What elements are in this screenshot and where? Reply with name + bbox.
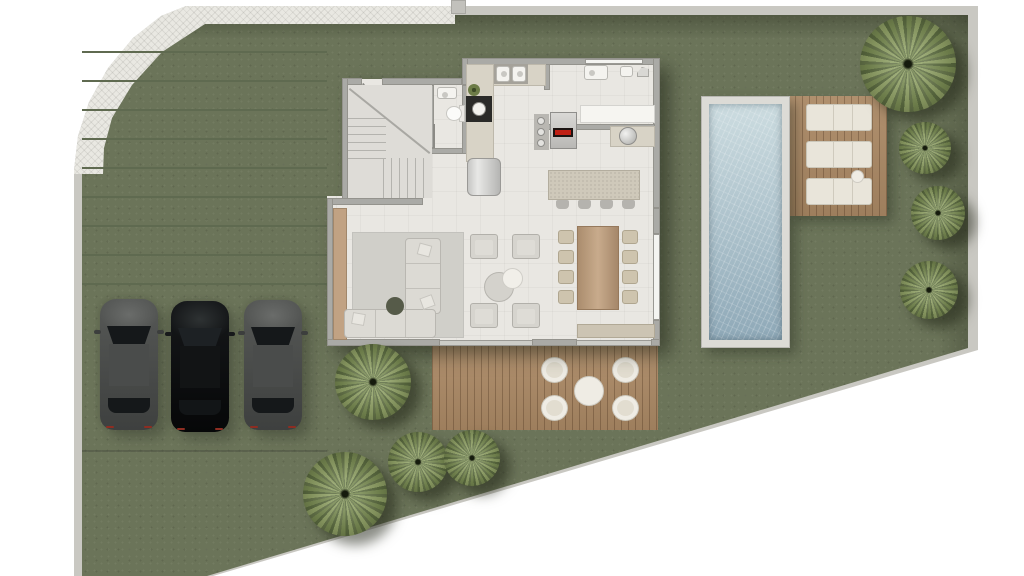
kitchen-island	[548, 170, 640, 200]
armchair-cushion	[475, 309, 493, 324]
sliding-door-track	[440, 340, 532, 346]
wall-bottom-mid	[532, 339, 577, 346]
car-windshield	[107, 326, 151, 344]
dark-side-table	[386, 297, 404, 315]
bar-stool	[622, 200, 635, 209]
dining-chair	[622, 230, 638, 244]
armchair-cushion	[517, 309, 535, 324]
car-taillight	[215, 428, 223, 430]
armchair	[470, 234, 498, 259]
floor-plan-canvas	[0, 0, 1024, 576]
dryer	[512, 66, 526, 82]
dining-table	[577, 226, 619, 310]
laundry-window	[585, 59, 643, 64]
wall-hall-living	[327, 198, 423, 205]
toilet	[446, 106, 462, 121]
car-mirror	[165, 332, 172, 336]
armchair	[470, 303, 498, 328]
wall-entry-right	[382, 78, 462, 85]
bar-stool	[578, 200, 591, 209]
wall-right-mid	[653, 208, 660, 234]
dryer-door	[517, 71, 523, 77]
armchair	[512, 303, 540, 328]
car-mirror	[301, 331, 308, 335]
stair-treads-upper	[348, 118, 386, 164]
dining-chair	[558, 230, 574, 244]
washer-door	[501, 71, 507, 77]
cooktop-knob	[537, 139, 545, 147]
dining-chair	[558, 250, 574, 264]
car-mirror	[238, 331, 245, 335]
palm-tree	[388, 432, 448, 492]
palm-tree	[900, 261, 958, 319]
car-mirror	[157, 330, 164, 334]
palm-tree	[911, 186, 965, 240]
wall-bottom-corner	[651, 339, 660, 346]
throw-pillow	[351, 312, 366, 326]
palm-tree	[444, 430, 500, 486]
car-mirror	[228, 332, 235, 336]
palm-tree	[303, 452, 387, 536]
oven-display-digits	[555, 130, 571, 135]
sink-basin	[442, 92, 448, 98]
armchair-cushion	[517, 240, 535, 255]
bar-stool	[600, 200, 613, 209]
car-taillight	[288, 426, 296, 428]
white-counter	[580, 105, 655, 123]
dining-chair	[558, 290, 574, 304]
car-suv-gray	[100, 299, 158, 430]
car-roof	[109, 344, 149, 386]
car-suv-gray	[244, 300, 302, 430]
car-rear-glass	[179, 400, 221, 415]
refrigerator	[467, 158, 501, 196]
stair-treads-lower	[383, 158, 425, 198]
sliding-door-track	[577, 340, 651, 346]
kitchen-sink-basin	[472, 102, 486, 116]
car-taillight	[106, 426, 114, 428]
car-taillight	[177, 428, 185, 430]
car-hatchback-black	[171, 301, 229, 432]
laundry-sink	[584, 65, 608, 80]
car-mirror	[94, 330, 101, 334]
palm-tree	[899, 122, 951, 174]
car-taillight	[144, 426, 152, 428]
palm-tree	[860, 16, 956, 112]
laundry-basket	[620, 66, 633, 77]
dining-chair	[558, 270, 574, 284]
palm-tree	[335, 344, 411, 420]
car-rear-glass	[108, 398, 150, 413]
cooktop-knob	[537, 117, 545, 125]
bar-stool	[556, 200, 569, 209]
washer	[496, 66, 510, 82]
dining-chair	[622, 270, 638, 284]
bathroom-sink	[437, 87, 457, 99]
dining-chair	[622, 290, 638, 304]
coffee-table-small	[502, 268, 523, 289]
car-windshield	[178, 328, 222, 346]
laundry-faucet	[589, 70, 595, 76]
sideboard	[577, 324, 655, 338]
car-rear-glass	[252, 398, 294, 413]
car-taillight	[250, 426, 258, 428]
dining-chair	[622, 250, 638, 264]
dining-window	[653, 234, 660, 320]
plant-pot	[468, 84, 480, 96]
bathroom-door-leaf	[433, 124, 435, 148]
bbq-grill-dome	[619, 127, 637, 145]
car-roof	[253, 345, 293, 387]
car-windshield	[251, 327, 295, 345]
car-roof	[180, 346, 220, 388]
cooktop-knob	[537, 128, 545, 136]
armchair-cushion	[475, 240, 493, 255]
armchair	[512, 234, 540, 259]
